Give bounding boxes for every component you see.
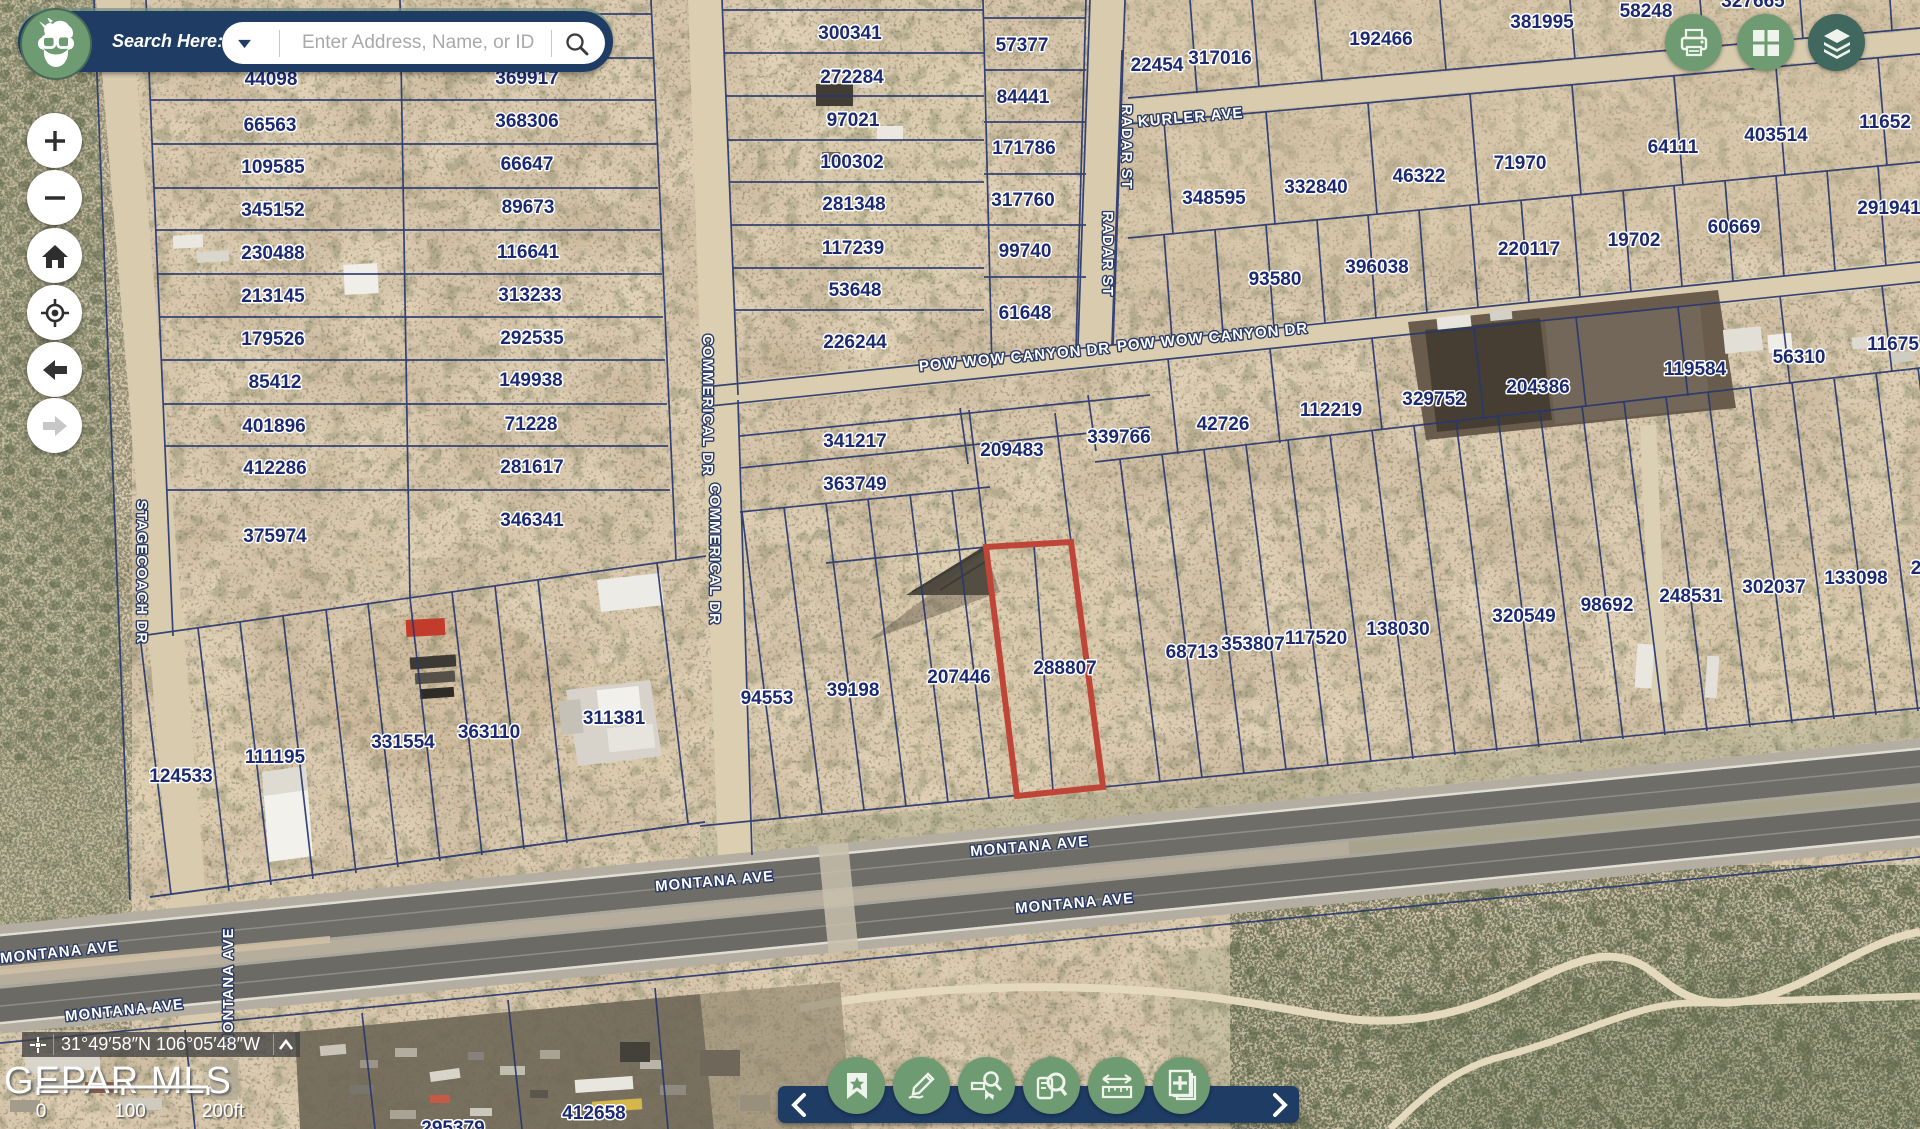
svg-text:COMMERICAL DR: COMMERICAL DR xyxy=(706,483,723,625)
svg-text:179526: 179526 xyxy=(241,329,304,350)
svg-text:327665: 327665 xyxy=(1721,0,1785,12)
svg-text:272284: 272284 xyxy=(820,67,884,88)
svg-text:311381: 311381 xyxy=(583,708,646,729)
svg-text:0: 0 xyxy=(36,1101,47,1122)
svg-text:124533: 124533 xyxy=(149,766,212,787)
svg-text:2: 2 xyxy=(1911,558,1920,579)
svg-text:412658: 412658 xyxy=(562,1103,625,1124)
svg-text:329752: 329752 xyxy=(1402,389,1465,410)
svg-text:403514: 403514 xyxy=(1744,125,1808,146)
svg-text:288807: 288807 xyxy=(1033,658,1096,679)
svg-text:149938: 149938 xyxy=(499,370,562,391)
svg-text:317760: 317760 xyxy=(991,190,1054,211)
svg-text:346341: 346341 xyxy=(500,510,564,531)
svg-text:57377: 57377 xyxy=(996,35,1049,56)
svg-text:401896: 401896 xyxy=(242,416,305,437)
svg-text:248531: 248531 xyxy=(1659,586,1723,607)
svg-text:66647: 66647 xyxy=(501,154,554,175)
svg-text:313233: 313233 xyxy=(498,285,561,306)
svg-text:94553: 94553 xyxy=(741,688,794,709)
svg-text:11652: 11652 xyxy=(1859,112,1911,133)
svg-text:64111: 64111 xyxy=(1648,137,1699,158)
svg-text:100: 100 xyxy=(114,1101,146,1122)
svg-text:368306: 368306 xyxy=(495,111,558,132)
svg-text:302037: 302037 xyxy=(1742,577,1805,598)
svg-text:281617: 281617 xyxy=(500,457,563,478)
svg-text:60669: 60669 xyxy=(1708,217,1761,238)
svg-text:93580: 93580 xyxy=(1249,269,1302,290)
svg-text:109585: 109585 xyxy=(241,157,305,178)
svg-text:292535: 292535 xyxy=(500,328,564,349)
svg-text:116641: 116641 xyxy=(497,242,560,263)
svg-text:363749: 363749 xyxy=(823,474,886,495)
svg-text:300341: 300341 xyxy=(818,23,882,44)
svg-text:97021: 97021 xyxy=(827,110,880,131)
svg-text:66563: 66563 xyxy=(244,115,297,136)
svg-text:11675: 11675 xyxy=(1867,334,1919,355)
svg-text:98692: 98692 xyxy=(1581,595,1634,616)
svg-text:207446: 207446 xyxy=(927,667,990,688)
svg-text:89673: 89673 xyxy=(502,197,555,218)
svg-text:171786: 171786 xyxy=(992,138,1055,159)
svg-text:363110: 363110 xyxy=(458,722,520,743)
svg-text:375974: 375974 xyxy=(243,526,307,547)
svg-text:112219: 112219 xyxy=(1300,400,1362,421)
svg-text:119584: 119584 xyxy=(1664,359,1727,380)
svg-text:226244: 226244 xyxy=(823,332,887,353)
svg-text:353807: 353807 xyxy=(1221,634,1284,655)
svg-text:84441: 84441 xyxy=(997,87,1050,108)
svg-text:100302: 100302 xyxy=(820,152,883,173)
svg-text:291941: 291941 xyxy=(1857,198,1920,219)
svg-text:MONTANA AVE: MONTANA AVE xyxy=(220,927,237,1046)
svg-text:209483: 209483 xyxy=(980,440,1043,461)
svg-text:42726: 42726 xyxy=(1197,414,1250,435)
svg-text:320549: 320549 xyxy=(1492,606,1555,627)
svg-text:56310: 56310 xyxy=(1773,347,1826,368)
svg-text:53648: 53648 xyxy=(829,280,882,301)
svg-text:58248: 58248 xyxy=(1620,1,1673,22)
svg-text:341217: 341217 xyxy=(823,431,886,452)
svg-text:317016: 317016 xyxy=(1188,48,1251,69)
svg-text:39198: 39198 xyxy=(827,680,880,701)
svg-text:295379: 295379 xyxy=(421,1118,484,1129)
svg-text:46322: 46322 xyxy=(1393,166,1446,187)
svg-text:220117: 220117 xyxy=(1498,239,1560,260)
svg-text:192466: 192466 xyxy=(1349,29,1412,50)
svg-text:61648: 61648 xyxy=(999,303,1052,324)
svg-text:412286: 412286 xyxy=(243,458,306,479)
svg-text:71228: 71228 xyxy=(505,414,558,435)
svg-text:230488: 230488 xyxy=(241,243,304,264)
svg-text:99740: 99740 xyxy=(999,241,1052,262)
svg-text:STAGECOACH DR: STAGECOACH DR xyxy=(133,500,150,644)
svg-text:19702: 19702 xyxy=(1608,230,1661,251)
svg-text:111195: 111195 xyxy=(245,747,306,768)
svg-text:71970: 71970 xyxy=(1494,153,1547,174)
svg-text:117520: 117520 xyxy=(1285,628,1347,649)
svg-text:381995: 381995 xyxy=(1510,12,1574,33)
svg-text:396038: 396038 xyxy=(1345,257,1408,278)
svg-text:85412: 85412 xyxy=(249,372,302,393)
svg-text:22454: 22454 xyxy=(1131,55,1184,76)
svg-text:345152: 345152 xyxy=(241,200,304,221)
svg-text:200ft: 200ft xyxy=(202,1101,245,1122)
svg-text:44098: 44098 xyxy=(245,69,298,90)
svg-text:332840: 332840 xyxy=(1284,177,1347,198)
svg-text:68713: 68713 xyxy=(1166,642,1219,663)
svg-text:COMMERICAL DR: COMMERICAL DR xyxy=(699,334,716,476)
svg-text:133098: 133098 xyxy=(1824,568,1887,589)
svg-text:204386: 204386 xyxy=(1506,377,1569,398)
svg-text:281348: 281348 xyxy=(822,194,885,215)
svg-text:138030: 138030 xyxy=(1366,619,1429,640)
svg-text:348595: 348595 xyxy=(1182,188,1246,209)
svg-text:213145: 213145 xyxy=(241,286,305,307)
svg-text:117239: 117239 xyxy=(822,238,884,259)
svg-text:RADAR ST: RADAR ST xyxy=(1118,104,1135,190)
svg-text:RADAR ST: RADAR ST xyxy=(1099,211,1116,297)
svg-text:339766: 339766 xyxy=(1087,427,1150,448)
svg-text:331554: 331554 xyxy=(371,732,435,753)
